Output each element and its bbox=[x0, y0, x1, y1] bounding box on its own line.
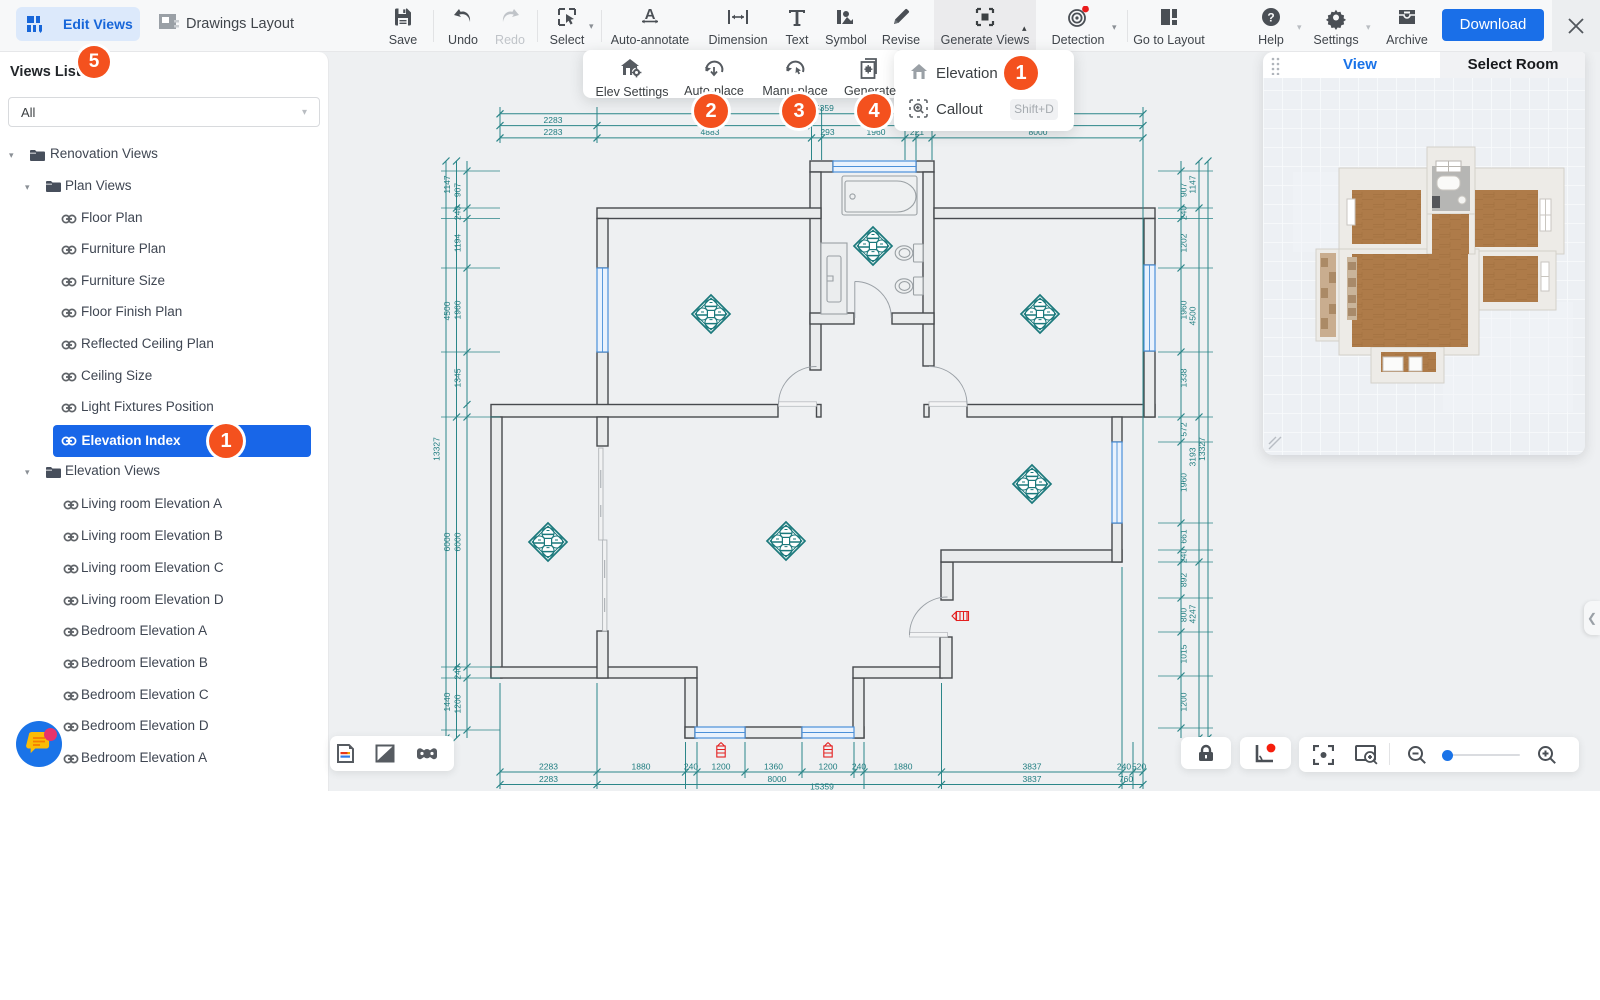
svg-text:2283: 2283 bbox=[539, 774, 558, 784]
svg-text:240: 240 bbox=[1117, 762, 1131, 772]
svg-text:240: 240 bbox=[852, 762, 866, 772]
svg-text:1880: 1880 bbox=[894, 762, 913, 772]
svg-text:3193: 3193 bbox=[1188, 447, 1198, 466]
svg-text:4500: 4500 bbox=[442, 301, 452, 320]
svg-text:1015: 1015 bbox=[1179, 644, 1189, 663]
svg-text:1200: 1200 bbox=[1179, 692, 1189, 711]
svg-text:760: 760 bbox=[1119, 774, 1133, 784]
svg-text:1960: 1960 bbox=[867, 127, 886, 137]
svg-text:240: 240 bbox=[453, 665, 463, 679]
svg-text:1194: 1194 bbox=[453, 234, 463, 253]
svg-text:1880: 1880 bbox=[632, 762, 651, 772]
svg-text:240: 240 bbox=[684, 762, 698, 772]
svg-text:1338: 1338 bbox=[1179, 368, 1189, 387]
svg-text:293: 293 bbox=[820, 127, 834, 137]
svg-text:13327: 13327 bbox=[432, 437, 442, 461]
svg-text:1200: 1200 bbox=[819, 762, 838, 772]
svg-text:1960: 1960 bbox=[453, 300, 463, 319]
svg-text:?: ? bbox=[1267, 11, 1274, 25]
svg-text:13327: 13327 bbox=[1197, 437, 1207, 461]
svg-text:240: 240 bbox=[1179, 549, 1189, 563]
svg-text:1202: 1202 bbox=[1179, 233, 1189, 252]
svg-text:1360: 1360 bbox=[764, 762, 783, 772]
svg-text:520: 520 bbox=[1132, 762, 1146, 772]
svg-text:2283: 2283 bbox=[544, 115, 563, 125]
svg-text:1200: 1200 bbox=[453, 694, 463, 713]
svg-text:15359: 15359 bbox=[810, 782, 834, 792]
svg-text:6000: 6000 bbox=[453, 532, 463, 551]
svg-text:572: 572 bbox=[1179, 422, 1189, 436]
svg-text:1200: 1200 bbox=[712, 762, 731, 772]
svg-text:1345: 1345 bbox=[453, 368, 463, 387]
svg-text:1960: 1960 bbox=[1179, 473, 1189, 492]
svg-text:4883: 4883 bbox=[701, 127, 720, 137]
svg-text:3837: 3837 bbox=[1023, 762, 1042, 772]
svg-text:4247: 4247 bbox=[1188, 604, 1198, 623]
svg-text:1147: 1147 bbox=[442, 175, 452, 194]
svg-text:A: A bbox=[645, 6, 656, 23]
svg-text:1147: 1147 bbox=[1188, 175, 1198, 194]
svg-text:907: 907 bbox=[453, 183, 463, 197]
svg-text:240: 240 bbox=[1179, 206, 1189, 220]
svg-text:661: 661 bbox=[1179, 529, 1189, 543]
svg-text:8000: 8000 bbox=[768, 774, 787, 784]
svg-text:892: 892 bbox=[1179, 573, 1189, 587]
svg-text:2283: 2283 bbox=[544, 127, 563, 137]
svg-text:4500: 4500 bbox=[1188, 306, 1198, 325]
svg-text:1440: 1440 bbox=[442, 692, 452, 711]
svg-text:2283: 2283 bbox=[539, 762, 558, 772]
svg-text:240: 240 bbox=[453, 206, 463, 220]
svg-text:3837: 3837 bbox=[1023, 774, 1042, 784]
svg-text:6000: 6000 bbox=[442, 532, 452, 551]
